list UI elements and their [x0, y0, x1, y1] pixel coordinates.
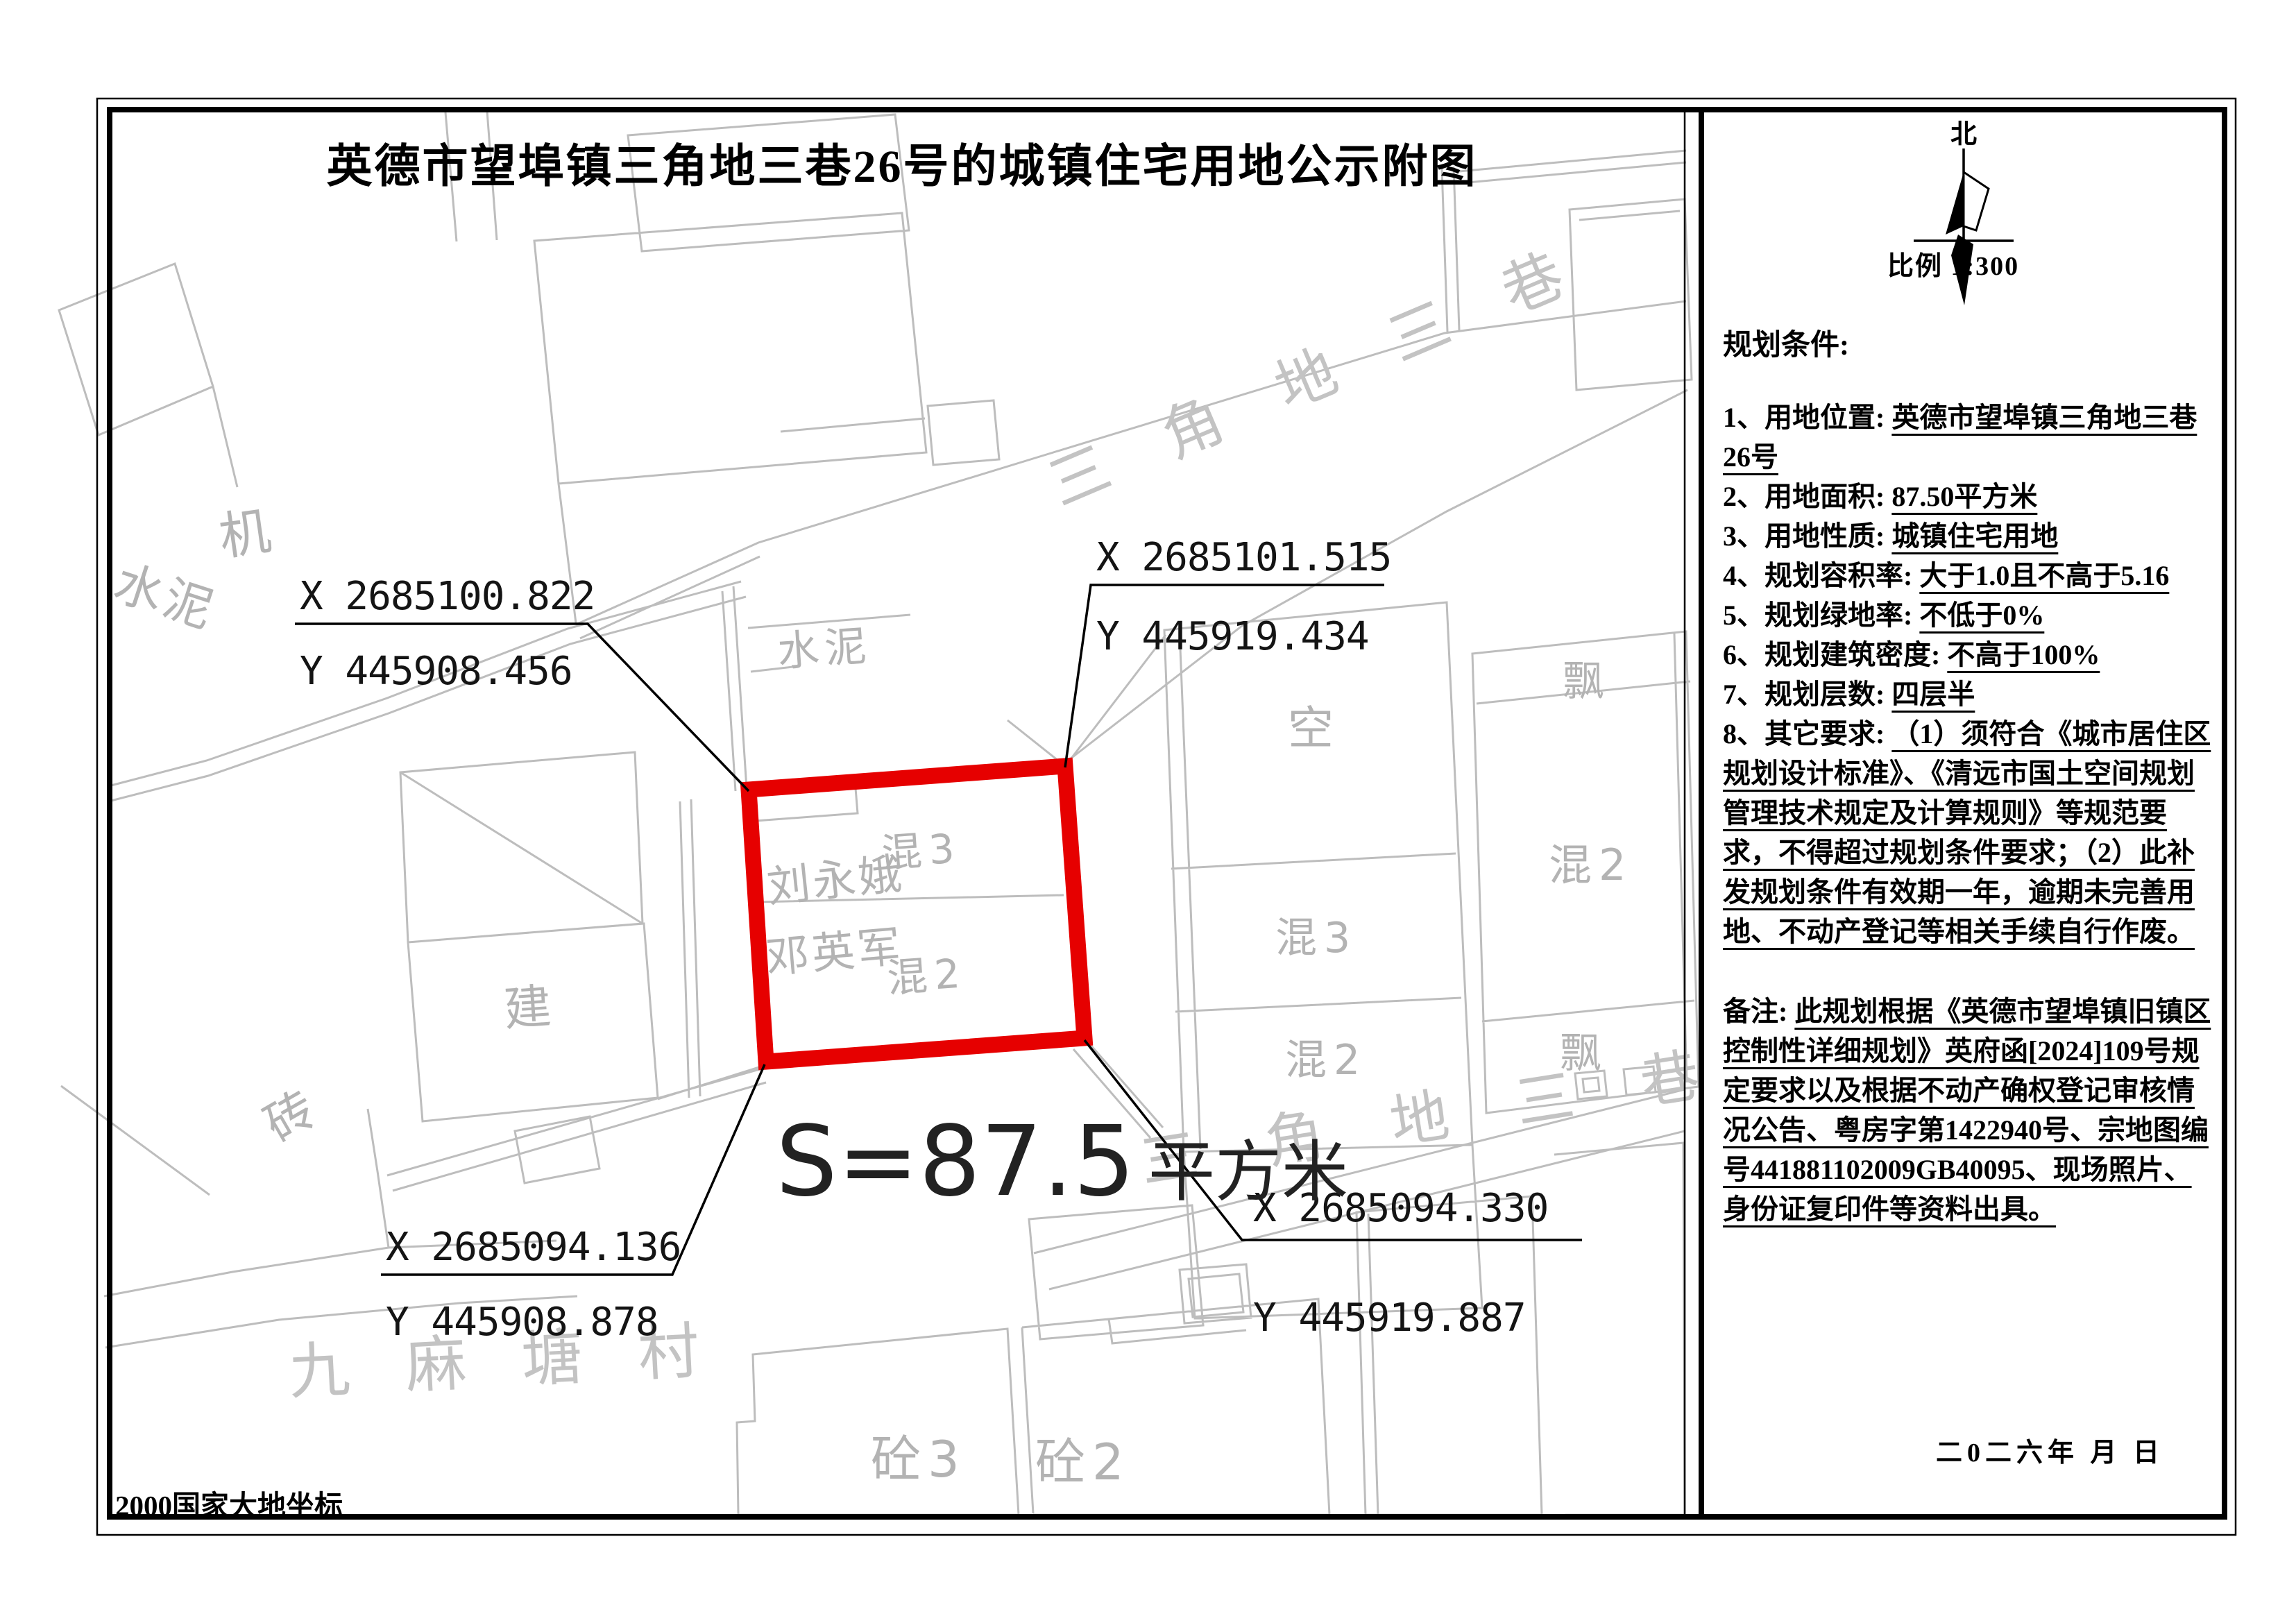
jian-label: 建 — [502, 979, 553, 1037]
sheet-title: 英德市望埠镇三角地三巷26号的城镇住宅用地公示附图 — [167, 129, 1638, 196]
street-name-top-label: 三 角 地 三 巷 — [1039, 232, 1595, 520]
ji-label: 机 — [216, 501, 275, 567]
condition-label: 4、规划容积率: — [1723, 560, 1919, 591]
coordinate-texts: X 2685100.822 Y 445908.456 X 2685101.515… — [300, 535, 1548, 1345]
notes-label: 备注: — [1723, 996, 1794, 1027]
condition-value: 不低于0% — [1919, 600, 2044, 631]
hun3-right-label: 混3 — [1275, 914, 1357, 962]
owner2-label: 邓英军 — [764, 921, 905, 983]
kong-label: 空 — [1288, 702, 1334, 755]
datum-note: 2000国家大地坐标 — [115, 1482, 343, 1524]
condition-value: 87.50平方米 — [1891, 481, 2037, 512]
shuini-left-label: 水泥 — [108, 554, 223, 640]
shuini-mid-label: 水泥 — [776, 622, 874, 677]
coord-top-right-y: Y 445919.434 — [1096, 614, 1369, 659]
coord-top-left-x: X 2685100.822 — [300, 574, 595, 619]
coord-top-left-y: Y 445908.456 — [300, 649, 572, 694]
tong3-label: 砼3 — [871, 1430, 967, 1488]
condition-value: 四层半 — [1891, 679, 1975, 710]
plan-sheet: 三 角 地 三 巷 三 角 地 三 巷 机 水泥 水泥 建 砖 刘永娥 邓英军 … — [0, 0, 2296, 1623]
piao-bottom-label: 飘 — [1560, 1029, 1601, 1078]
condition-value: 城镇住宅用地 — [1891, 520, 2058, 552]
hun2-far-label: 混2 — [1549, 840, 1633, 890]
condition-label: 3、用地性质: — [1723, 520, 1891, 552]
condition-item: 2、用地面积: 87.50平方米 — [1723, 477, 2213, 516]
coord-bottom-left-y: Y 445908.878 — [386, 1300, 658, 1345]
condition-label: 6、规划建筑密度: — [1723, 639, 1947, 670]
condition-label: 5、规划绿地率: — [1723, 600, 1919, 631]
condition-item: 4、规划容积率: 大于1.0且不高于5.16 — [1723, 556, 2213, 595]
notes-block: 备注: 此规划根据《英德市望埠镇旧镇区控制性详细规划》英府函[2024]109号… — [1723, 992, 2213, 1229]
condition-item: 1、用地位置: 英德市望埠镇三角地三巷26号 — [1723, 398, 2213, 477]
condition-value: （1）须符合《城市居住区规划设计标准》、《清远市国土空间规划管理技术规定及计算规… — [1723, 718, 2211, 947]
date-line: 二0二六年 月 日 — [1936, 1431, 2164, 1469]
planning-conditions-panel: 规划条件: 1、用地位置: 英德市望埠镇三角地三巷26号 2、用地面积: 87.… — [1723, 326, 2213, 1229]
condition-label: 7、规划层数: — [1723, 679, 1891, 710]
zhuan-label: 砖 — [255, 1080, 326, 1154]
coord-top-right-x: X 2685101.515 — [1096, 535, 1391, 580]
tong2-label: 砼2 — [1035, 1433, 1131, 1491]
scale-label: 比例 1:300 — [1887, 244, 2165, 282]
area-unit: 平方米 — [1148, 1133, 1348, 1211]
north-label: 北 — [1950, 120, 1977, 149]
condition-item: 3、用地性质: 城镇住宅用地 — [1723, 516, 2213, 556]
condition-label: 8、其它要求: — [1723, 718, 1891, 749]
condition-value: 不高于100% — [1947, 639, 2100, 670]
condition-label: 1、用地位置: — [1723, 402, 1891, 433]
condition-item: 6、规划建筑密度: 不高于100% — [1723, 635, 2213, 674]
condition-label: 2、用地面积: — [1723, 481, 1891, 512]
condition-item: 5、规划绿地率: 不低于0% — [1723, 595, 2213, 635]
hun2-right-label: 混2 — [1285, 1036, 1367, 1085]
condition-item: 7、规划层数: 四层半 — [1723, 674, 2213, 714]
condition-item: 8、其它要求: （1）须符合《城市居住区规划设计标准》、《清远市国土空间规划管理… — [1723, 714, 2213, 951]
notes-value: 此规划根据《英德市望埠镇旧镇区控制性详细规划》英府函[2024]109号规定要求… — [1723, 996, 2211, 1225]
coord-bottom-right-y: Y 445919.887 — [1253, 1295, 1526, 1341]
area-value: S=87.5 — [776, 1105, 1135, 1218]
hun3-parcel-label: 混3 — [880, 824, 962, 877]
coord-bottom-left-x: X 2685094.136 — [386, 1225, 681, 1270]
condition-value: 大于1.0且不高于5.16 — [1919, 560, 2169, 591]
parcel-boundary — [749, 766, 1085, 1062]
conditions-heading: 规划条件: — [1723, 326, 2213, 366]
hun2-parcel-label: 混2 — [885, 949, 968, 1002]
piao-top-label: 飘 — [1563, 657, 1604, 706]
